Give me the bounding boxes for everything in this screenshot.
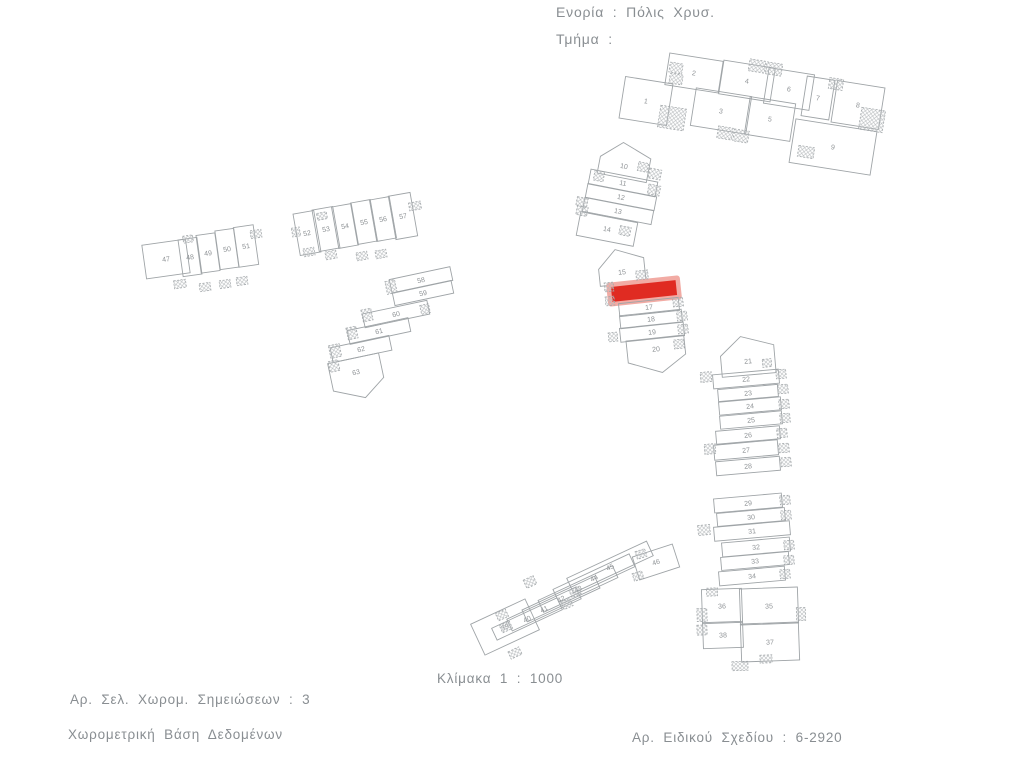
- building-mark: [784, 555, 795, 565]
- parcel-label: 2: [691, 70, 696, 78]
- building-mark: [408, 201, 421, 211]
- parcel-label: 51: [242, 243, 251, 251]
- building-mark: [673, 297, 684, 307]
- scale-text: Κλίμακα 1 : 1000: [437, 671, 563, 686]
- building-mark: [779, 443, 790, 453]
- building-mark: [635, 549, 647, 560]
- building-mark: [697, 625, 707, 635]
- scanned-cadastral-plan: 1234567891011121314151718192021222324252…: [0, 0, 1024, 768]
- building-mark: [647, 184, 661, 196]
- parcel-label: 46: [652, 558, 662, 567]
- parcel-label: 54: [341, 223, 350, 231]
- building-mark: [619, 226, 632, 237]
- parcel-label: 4: [744, 78, 749, 86]
- parcel-label: 29: [744, 500, 752, 508]
- parcel-label: 32: [752, 544, 760, 552]
- special-plan-number-text: Αρ. Ειδικού Σχεδίου : 6-2920: [632, 730, 842, 745]
- building-mark: [784, 540, 795, 550]
- parcel-label: 36: [718, 603, 726, 610]
- parcel-label: 50: [223, 246, 232, 254]
- parcel-label: 24: [746, 403, 754, 411]
- building-mark: [733, 129, 750, 143]
- building-mark: [636, 270, 649, 280]
- parcel-label: 49: [204, 250, 213, 258]
- building-mark: [781, 510, 792, 520]
- parcel-label: 15: [618, 269, 627, 277]
- block-1-9: 123456789: [619, 53, 886, 175]
- parcel-label: 53: [322, 226, 331, 234]
- parcel-label: 23: [744, 390, 752, 398]
- parcel-label: 22: [742, 376, 750, 384]
- parcel-label: 14: [602, 226, 611, 234]
- parcel-label: 26: [744, 432, 752, 440]
- building-mark: [605, 296, 615, 306]
- database-text: Χωρομετρική Βάση Δεδομένων: [68, 727, 283, 742]
- building-mark: [632, 571, 644, 582]
- parcel-label: 20: [652, 346, 661, 354]
- parcel-label: 57: [399, 213, 408, 221]
- building-mark: [677, 311, 688, 321]
- building-mark: [674, 339, 685, 349]
- parcel-label: 56: [379, 216, 388, 224]
- building-mark: [700, 372, 712, 383]
- building-mark: [183, 235, 194, 243]
- parcel-label: 47: [162, 256, 171, 264]
- parcel-label: 13: [613, 208, 622, 216]
- block-29-38: 29303132333436353837: [697, 493, 806, 671]
- building-mark: [328, 360, 340, 373]
- parcel-label: 17: [645, 304, 654, 312]
- building-mark: [593, 170, 605, 182]
- block-39-46: 3940414243444546: [471, 541, 680, 659]
- parcel-label: 61: [375, 328, 384, 336]
- parcel-label: 33: [751, 558, 759, 566]
- building-mark: [236, 276, 248, 285]
- building-mark: [508, 647, 522, 659]
- building-mark: [523, 576, 537, 589]
- building-mark: [780, 495, 791, 505]
- building-mark: [637, 162, 649, 173]
- block-10-14: 1011121314: [576, 139, 662, 247]
- section-text: Τμήμα :: [556, 31, 613, 47]
- building-mark: [316, 212, 327, 221]
- parcel-label: 6: [786, 86, 791, 94]
- building-mark: [174, 279, 187, 289]
- building-mark: [858, 107, 885, 132]
- building-mark: [780, 413, 791, 423]
- parcel-label: 30: [747, 514, 755, 522]
- building-mark: [732, 661, 748, 671]
- block-47-51: 4748495051: [142, 225, 262, 292]
- building-mark: [765, 62, 783, 76]
- block-15-20: 1517181920: [597, 247, 689, 376]
- building-mark: [779, 399, 790, 409]
- parcel-label: 34: [748, 573, 756, 581]
- parcel-label: 38: [719, 632, 727, 639]
- building-mark: [657, 105, 686, 131]
- parcel-label: 5: [767, 116, 772, 124]
- building-mark: [608, 332, 618, 342]
- building-mark: [303, 247, 315, 257]
- building-mark: [604, 282, 614, 292]
- parcel-label: 31: [748, 528, 756, 536]
- building-mark: [499, 621, 512, 633]
- block-21-28: 2122232425262728: [700, 334, 791, 476]
- parcel-label: 27: [742, 447, 750, 455]
- building-mark: [199, 282, 211, 291]
- parcel-label: 10: [619, 163, 628, 171]
- parcel-label: 9: [830, 144, 835, 152]
- parcel-label: 7: [815, 95, 820, 103]
- parcel-label: 55: [360, 219, 369, 227]
- building-mark: [669, 73, 683, 85]
- building-mark: [717, 126, 734, 140]
- parcel-label: 58: [417, 277, 426, 285]
- building-mark: [776, 369, 787, 379]
- building-mark: [361, 308, 373, 322]
- building-mark: [777, 428, 788, 438]
- building-mark: [748, 59, 766, 73]
- section-line: Τμήμα :: [556, 31, 613, 47]
- building-mark: [828, 77, 844, 90]
- parcel-label: 11: [619, 180, 628, 188]
- building-mark: [706, 588, 717, 596]
- parish-line: Ενορία : Πόλις Χρυσ.: [556, 4, 715, 20]
- survey-notes-line: Αρ. Σελ. Χωρομ. Σημειώσεων : 3: [70, 692, 310, 707]
- building-mark: [356, 251, 368, 261]
- building-mark: [385, 280, 397, 295]
- building-mark: [781, 457, 792, 467]
- parcel-label: 25: [747, 417, 755, 425]
- building-mark: [219, 279, 231, 288]
- survey-notes-text: Αρ. Σελ. Χωρομ. Σημειώσεων : 3: [70, 692, 310, 707]
- parcel-label: 60: [392, 311, 401, 319]
- building-mark: [375, 249, 387, 259]
- scale-line: Κλίμακα 1 : 1000: [437, 671, 563, 686]
- building-mark: [346, 326, 358, 340]
- parcel-label: 28: [744, 463, 752, 471]
- parcel-label: 52: [303, 230, 312, 238]
- parcel-label: 35: [765, 603, 773, 610]
- parcel-label: 37: [766, 639, 774, 646]
- parcel-label: 18: [647, 316, 656, 324]
- database-line: Χωρομετρική Βάση Δεδομένων: [68, 727, 283, 742]
- building-mark: [291, 227, 300, 237]
- parcel-21: [719, 334, 776, 378]
- parcel-label: 19: [648, 329, 657, 337]
- building-mark: [796, 607, 805, 620]
- building-mark: [778, 384, 789, 394]
- building-mark: [762, 359, 772, 368]
- parcel-label: 3: [718, 108, 723, 116]
- parcel-label: 1: [643, 98, 648, 106]
- building-mark: [325, 250, 337, 260]
- building-mark: [780, 569, 791, 579]
- parcel-label: 12: [616, 194, 625, 202]
- block-58-63: 585960616263: [328, 267, 454, 404]
- parcel-label: 48: [186, 254, 195, 262]
- building-mark: [250, 229, 262, 238]
- building-mark: [797, 145, 815, 158]
- parcel-label: 8: [855, 102, 860, 110]
- building-mark: [669, 62, 683, 74]
- parish-text: Ενορία : Πόλις Χρυσ.: [556, 4, 715, 20]
- building-mark: [420, 304, 431, 315]
- special-plan-number-line: Αρ. Ειδικού Σχεδίου : 6-2920: [632, 730, 842, 745]
- building-mark: [648, 168, 662, 180]
- building-mark: [760, 655, 772, 663]
- cadastral-map: 1234567891011121314151718192021222324252…: [0, 0, 1024, 768]
- block-52-57: 525354555657: [291, 192, 421, 260]
- building-mark: [698, 524, 711, 535]
- parcel-label: 59: [419, 290, 428, 298]
- building-mark: [704, 444, 716, 455]
- parcel-label: 21: [744, 358, 752, 366]
- parcel-label: 63: [352, 369, 361, 377]
- parcel-label: 62: [357, 346, 366, 354]
- building-mark: [678, 324, 689, 334]
- building-mark: [697, 608, 707, 621]
